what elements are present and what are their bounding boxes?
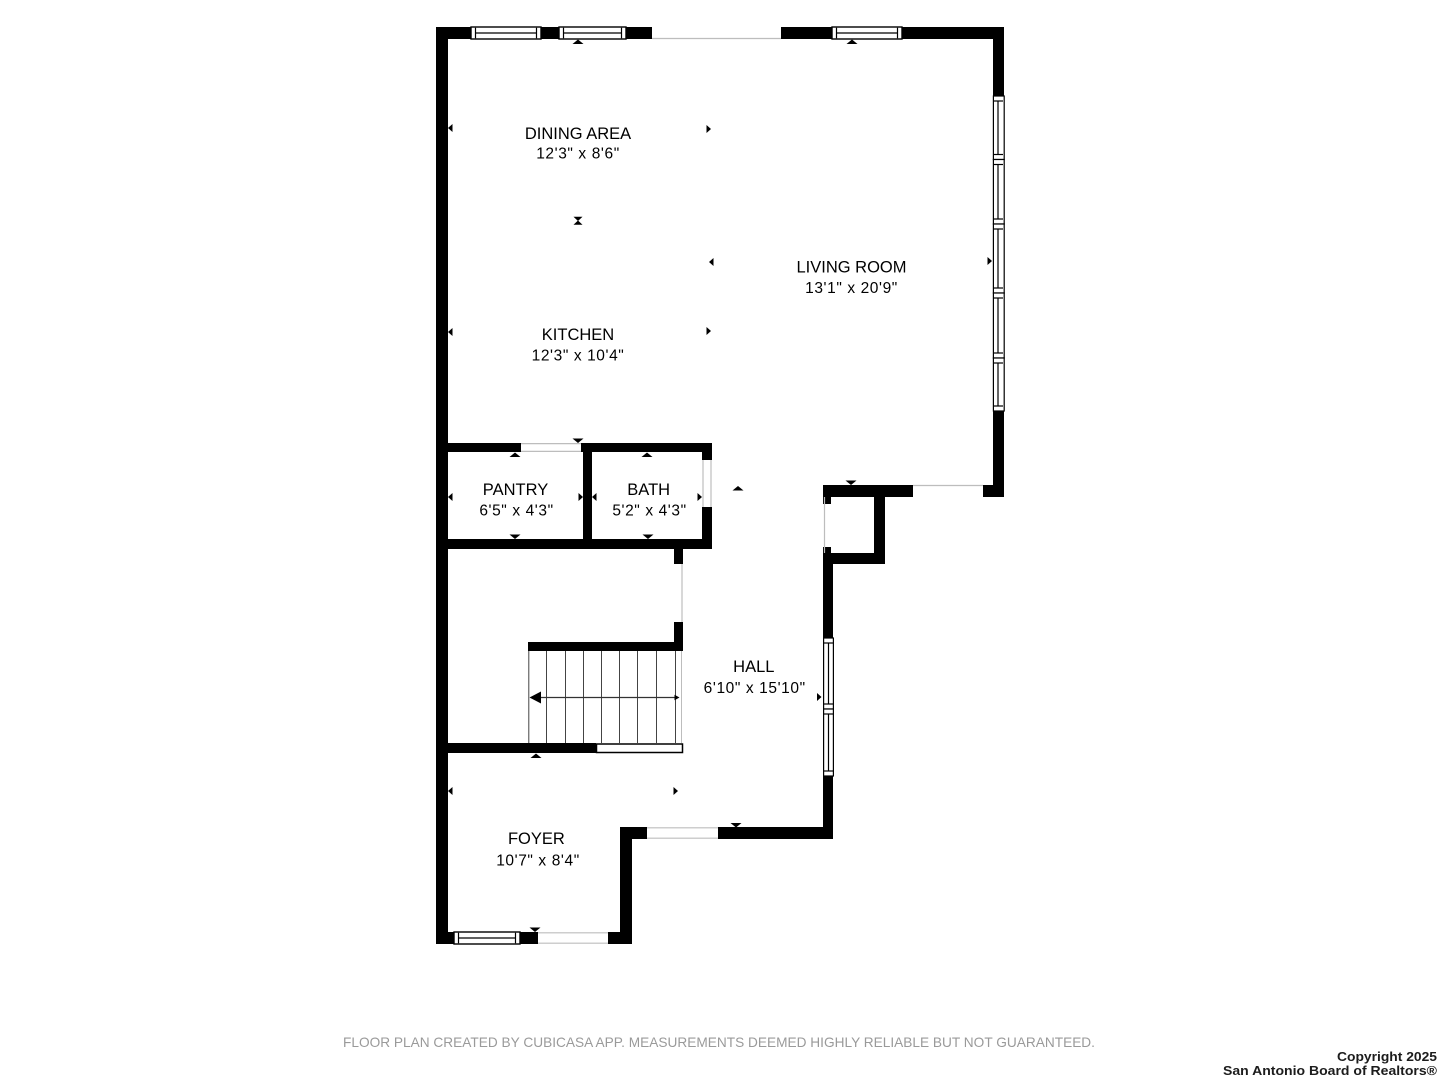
svg-text:12'3" x 8'6": 12'3" x 8'6": [536, 146, 620, 163]
svg-text:10'7" x 8'4": 10'7" x 8'4": [496, 853, 580, 870]
svg-text:BATH: BATH: [627, 481, 670, 499]
svg-text:KITCHEN: KITCHEN: [542, 326, 614, 344]
svg-text:13'1" x 20'9": 13'1" x 20'9": [805, 280, 898, 297]
svg-text:6'10" x 15'10": 6'10" x 15'10": [704, 680, 806, 697]
svg-text:PANTRY: PANTRY: [483, 481, 548, 499]
svg-text:FOYER: FOYER: [508, 830, 565, 848]
svg-text:FLOOR PLAN CREATED BY CUBICASA: FLOOR PLAN CREATED BY CUBICASA APP. MEAS…: [343, 1034, 1095, 1050]
svg-text:5'2" x 4'3": 5'2" x 4'3": [612, 503, 686, 520]
svg-text:San Antonio Board of Realtors®: San Antonio Board of Realtors®: [1223, 1063, 1437, 1078]
svg-text:6'5" x 4'3": 6'5" x 4'3": [479, 503, 553, 520]
svg-text:12'3" x 10'4": 12'3" x 10'4": [532, 348, 625, 365]
svg-text:DINING AREA: DINING AREA: [525, 125, 631, 143]
svg-text:LIVING ROOM: LIVING ROOM: [796, 259, 906, 277]
svg-text:HALL: HALL: [733, 658, 774, 676]
